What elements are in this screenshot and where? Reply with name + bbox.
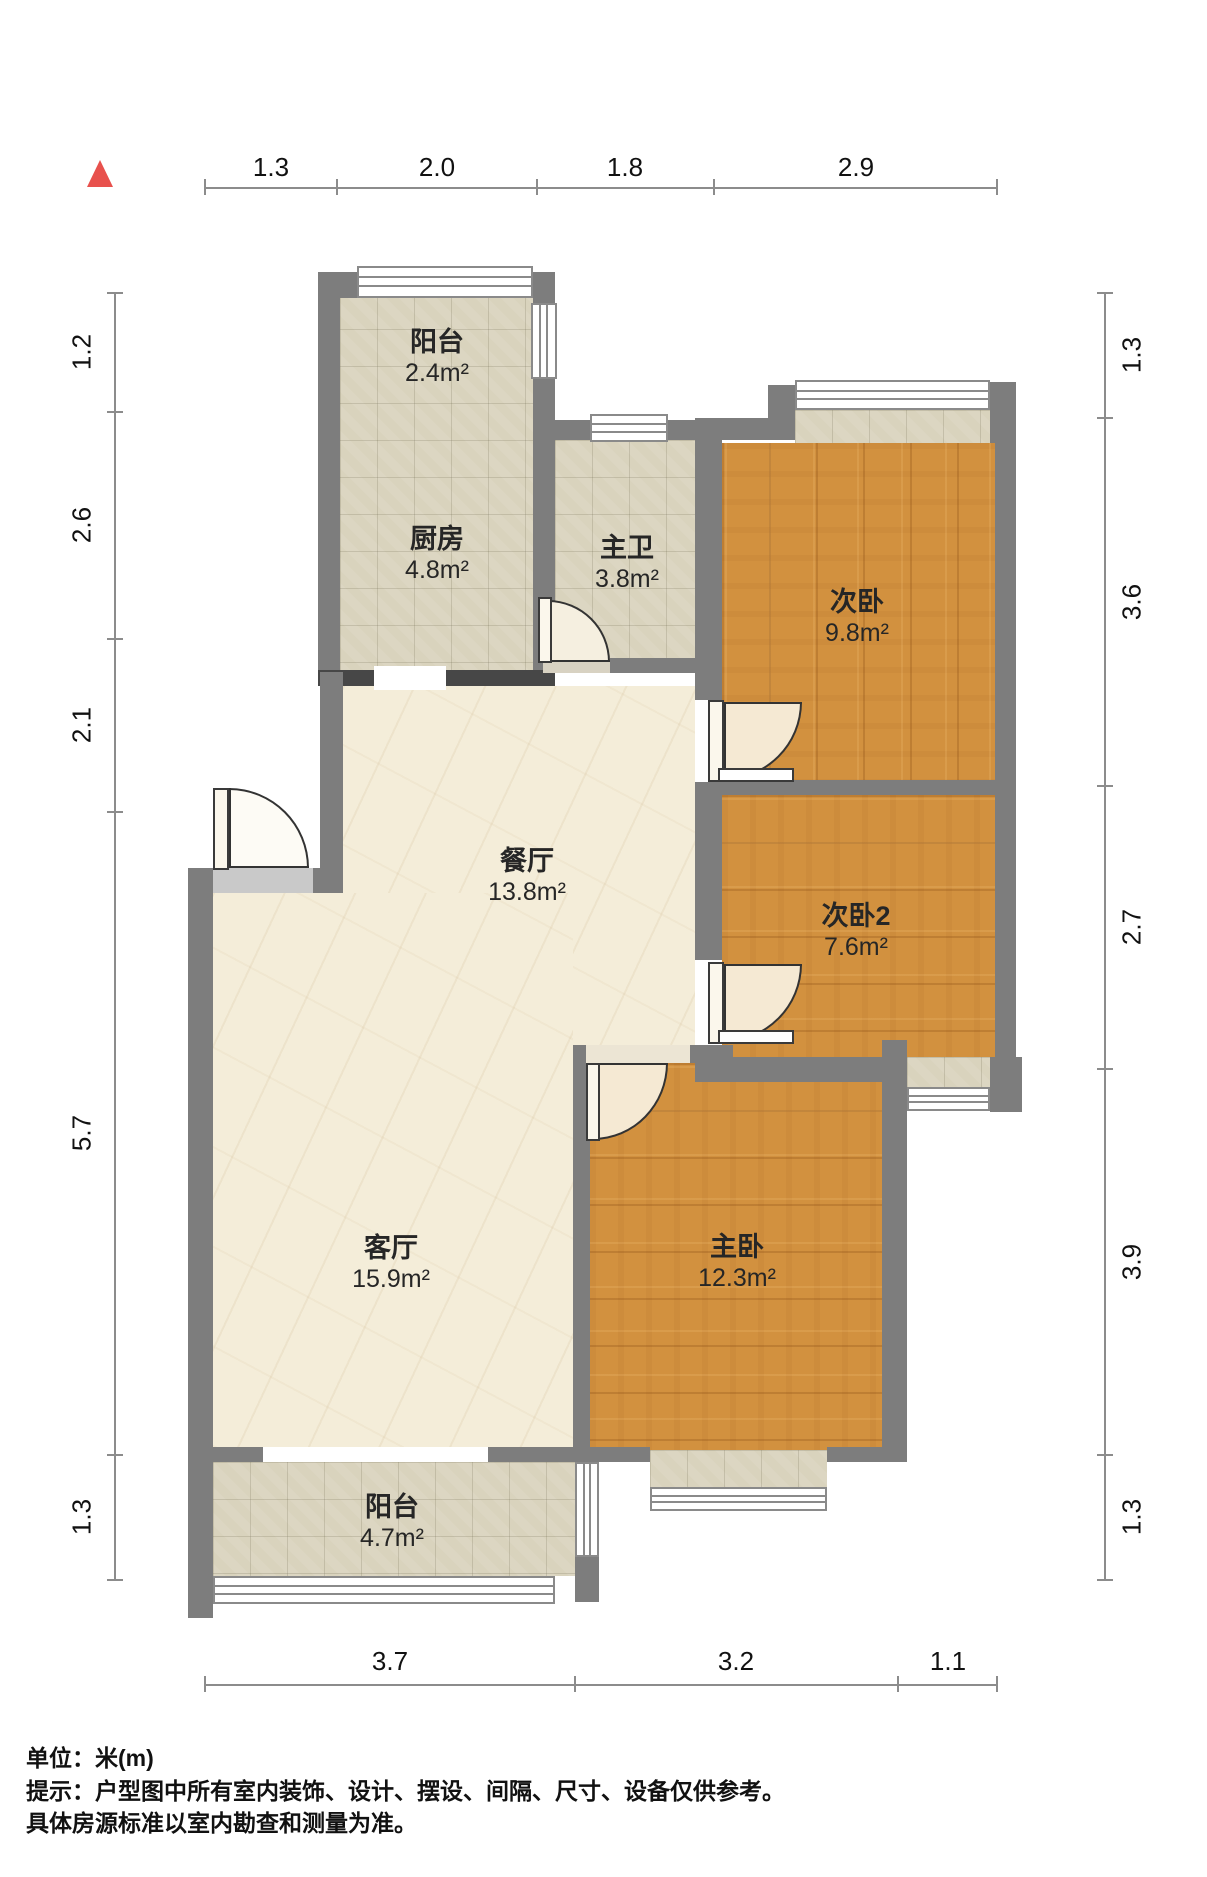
window-balcony-bottom <box>213 1576 555 1604</box>
footer-disclaimer-2: 具体房源标准以室内勘查和测量为准。 <box>26 1807 785 1840</box>
north-arrow-icon <box>87 160 113 187</box>
dim-label-bottom: 3.7 <box>372 1646 408 1677</box>
dim-label-left: 2.6 <box>67 507 98 543</box>
wall-master-right <box>882 1040 907 1462</box>
footer-disclaimer-1: 提示：户型图中所有室内装饰、设计、摆设、间隔、尺寸、设备仅供参考。 <box>26 1775 785 1808</box>
wall <box>590 1447 650 1462</box>
room-name: 主卫 <box>595 532 659 564</box>
master-door-threshold <box>586 1045 690 1063</box>
wall <box>318 272 340 684</box>
room-name: 阳台 <box>405 326 469 358</box>
room-area: 13.8m² <box>488 877 566 907</box>
dim-label-bottom: 3.2 <box>718 1646 754 1677</box>
dim-line-bottom <box>205 1684 998 1686</box>
room-label-bedroom2: 次卧 9.8m² <box>825 586 889 648</box>
window-balcony-side <box>531 303 557 379</box>
dim-label-left: 2.1 <box>67 707 98 743</box>
window-balcony-top <box>357 266 533 298</box>
room-area: 15.9m² <box>352 1264 430 1294</box>
dim-label-right: 3.6 <box>1117 584 1148 620</box>
dim-tick <box>996 179 998 195</box>
room-area: 3.8m² <box>595 564 659 594</box>
footer-notes: 单位：米(m) 提示：户型图中所有室内装饰、设计、摆设、间隔、尺寸、设备仅供参考… <box>26 1742 785 1840</box>
dim-label-right: 1.3 <box>1117 1499 1148 1535</box>
dim-tick <box>204 179 206 195</box>
wall <box>827 1447 907 1462</box>
window-bathroom <box>590 414 668 442</box>
room-label-living: 客厅 15.9m² <box>352 1232 430 1294</box>
dim-tick <box>1097 785 1113 787</box>
dim-label-bottom: 1.1 <box>930 1646 966 1677</box>
wall-left-outer <box>188 868 213 1618</box>
dim-label-top: 2.0 <box>419 152 455 183</box>
bay-window-sill-bottom <box>650 1450 827 1487</box>
room-name: 次卧2 <box>821 900 890 932</box>
bay-window-sill-top <box>795 410 995 443</box>
dim-tick <box>1097 1454 1113 1456</box>
bathroom-door-panel <box>538 597 552 663</box>
room-name: 餐厅 <box>488 845 566 877</box>
dim-tick <box>574 1676 576 1692</box>
dim-tick <box>897 1676 899 1692</box>
dim-tick <box>107 1579 123 1581</box>
wall <box>318 272 357 298</box>
floor-plan: 阳台 2.4m² 厨房 4.8m² 主卫 3.8m² 次卧 9.8m² 餐厅 1… <box>0 0 1207 1877</box>
footer-unit: 单位：米(m) <box>26 1742 785 1775</box>
dim-line-top <box>205 187 998 189</box>
wall <box>213 1447 263 1462</box>
kitchen-doorway-opening <box>374 666 446 690</box>
dim-tick <box>107 411 123 413</box>
dim-line-left <box>114 293 116 1580</box>
room-area: 7.6m² <box>821 932 890 962</box>
window-bedroom2-bay <box>795 380 990 410</box>
room-name: 厨房 <box>405 523 469 555</box>
wall-bathroom-bottom <box>610 658 695 673</box>
dim-label-top: 1.3 <box>253 152 289 183</box>
dim-tick <box>536 179 538 195</box>
dim-tick <box>1097 292 1113 294</box>
room-label-master: 主卧 12.3m² <box>698 1231 776 1293</box>
room-label-bedroom3: 次卧2 7.6m² <box>821 900 890 962</box>
entry-door-panel <box>213 788 229 870</box>
room-area: 4.7m² <box>360 1523 424 1553</box>
room-name: 主卧 <box>698 1231 776 1263</box>
wall <box>575 1555 599 1602</box>
dim-tick <box>1097 1579 1113 1581</box>
window-bedroom3-bay <box>907 1087 990 1111</box>
wall <box>690 1045 733 1063</box>
wall <box>990 1057 1022 1112</box>
dim-tick <box>1097 1068 1113 1070</box>
window-balcony-bottom-side <box>575 1462 599 1557</box>
bedroom3-door-sill <box>718 1030 794 1044</box>
room-area: 9.8m² <box>825 618 889 648</box>
dim-tick <box>713 179 715 195</box>
room-label-balcony-bottom: 阳台 4.7m² <box>360 1491 424 1553</box>
entry-threshold <box>213 868 313 893</box>
dim-label-right: 3.9 <box>1117 1244 1148 1280</box>
room-area: 12.3m² <box>698 1263 776 1293</box>
window-master-bay <box>650 1487 827 1511</box>
dim-label-top: 1.8 <box>607 152 643 183</box>
bedroom2-door-sill <box>718 768 794 782</box>
room-name: 次卧 <box>825 586 889 618</box>
dim-line-right <box>1104 293 1106 1580</box>
dim-tick <box>107 292 123 294</box>
room-label-balcony-top: 阳台 2.4m² <box>405 326 469 388</box>
dim-label-right: 1.3 <box>1117 337 1148 373</box>
dim-label-left: 1.3 <box>67 1499 98 1535</box>
dim-label-top: 2.9 <box>838 152 874 183</box>
wall-right-outer <box>995 418 1016 1082</box>
room-label-bathroom: 主卫 3.8m² <box>595 532 659 594</box>
room-name: 阳台 <box>360 1491 424 1523</box>
dim-tick <box>107 811 123 813</box>
room-label-dining: 餐厅 13.8m² <box>488 845 566 907</box>
dim-label-right: 2.7 <box>1117 909 1148 945</box>
entry-door-arc <box>229 788 309 868</box>
wall <box>768 385 795 418</box>
room-name: 客厅 <box>352 1232 430 1264</box>
wall-entry-right <box>313 868 343 893</box>
room-area: 2.4m² <box>405 358 469 388</box>
floor-living <box>213 893 573 1447</box>
wall <box>695 418 722 700</box>
dim-tick <box>336 179 338 195</box>
master-door-panel <box>586 1063 600 1141</box>
dim-tick <box>996 1676 998 1692</box>
wall <box>573 1045 586 1063</box>
wall-bedroom-divider <box>722 780 1016 795</box>
dim-label-left: 5.7 <box>67 1115 98 1151</box>
wall-dining-left <box>320 672 343 868</box>
dim-tick <box>1097 417 1113 419</box>
room-area: 4.8m² <box>405 555 469 585</box>
dim-tick <box>107 638 123 640</box>
dim-label-left: 1.2 <box>67 334 98 370</box>
wall <box>695 782 722 960</box>
dim-tick <box>204 1676 206 1692</box>
room-label-kitchen: 厨房 4.8m² <box>405 523 469 585</box>
wall <box>722 1057 907 1082</box>
dim-tick <box>107 1454 123 1456</box>
bay-window-sill-right <box>907 1057 990 1087</box>
